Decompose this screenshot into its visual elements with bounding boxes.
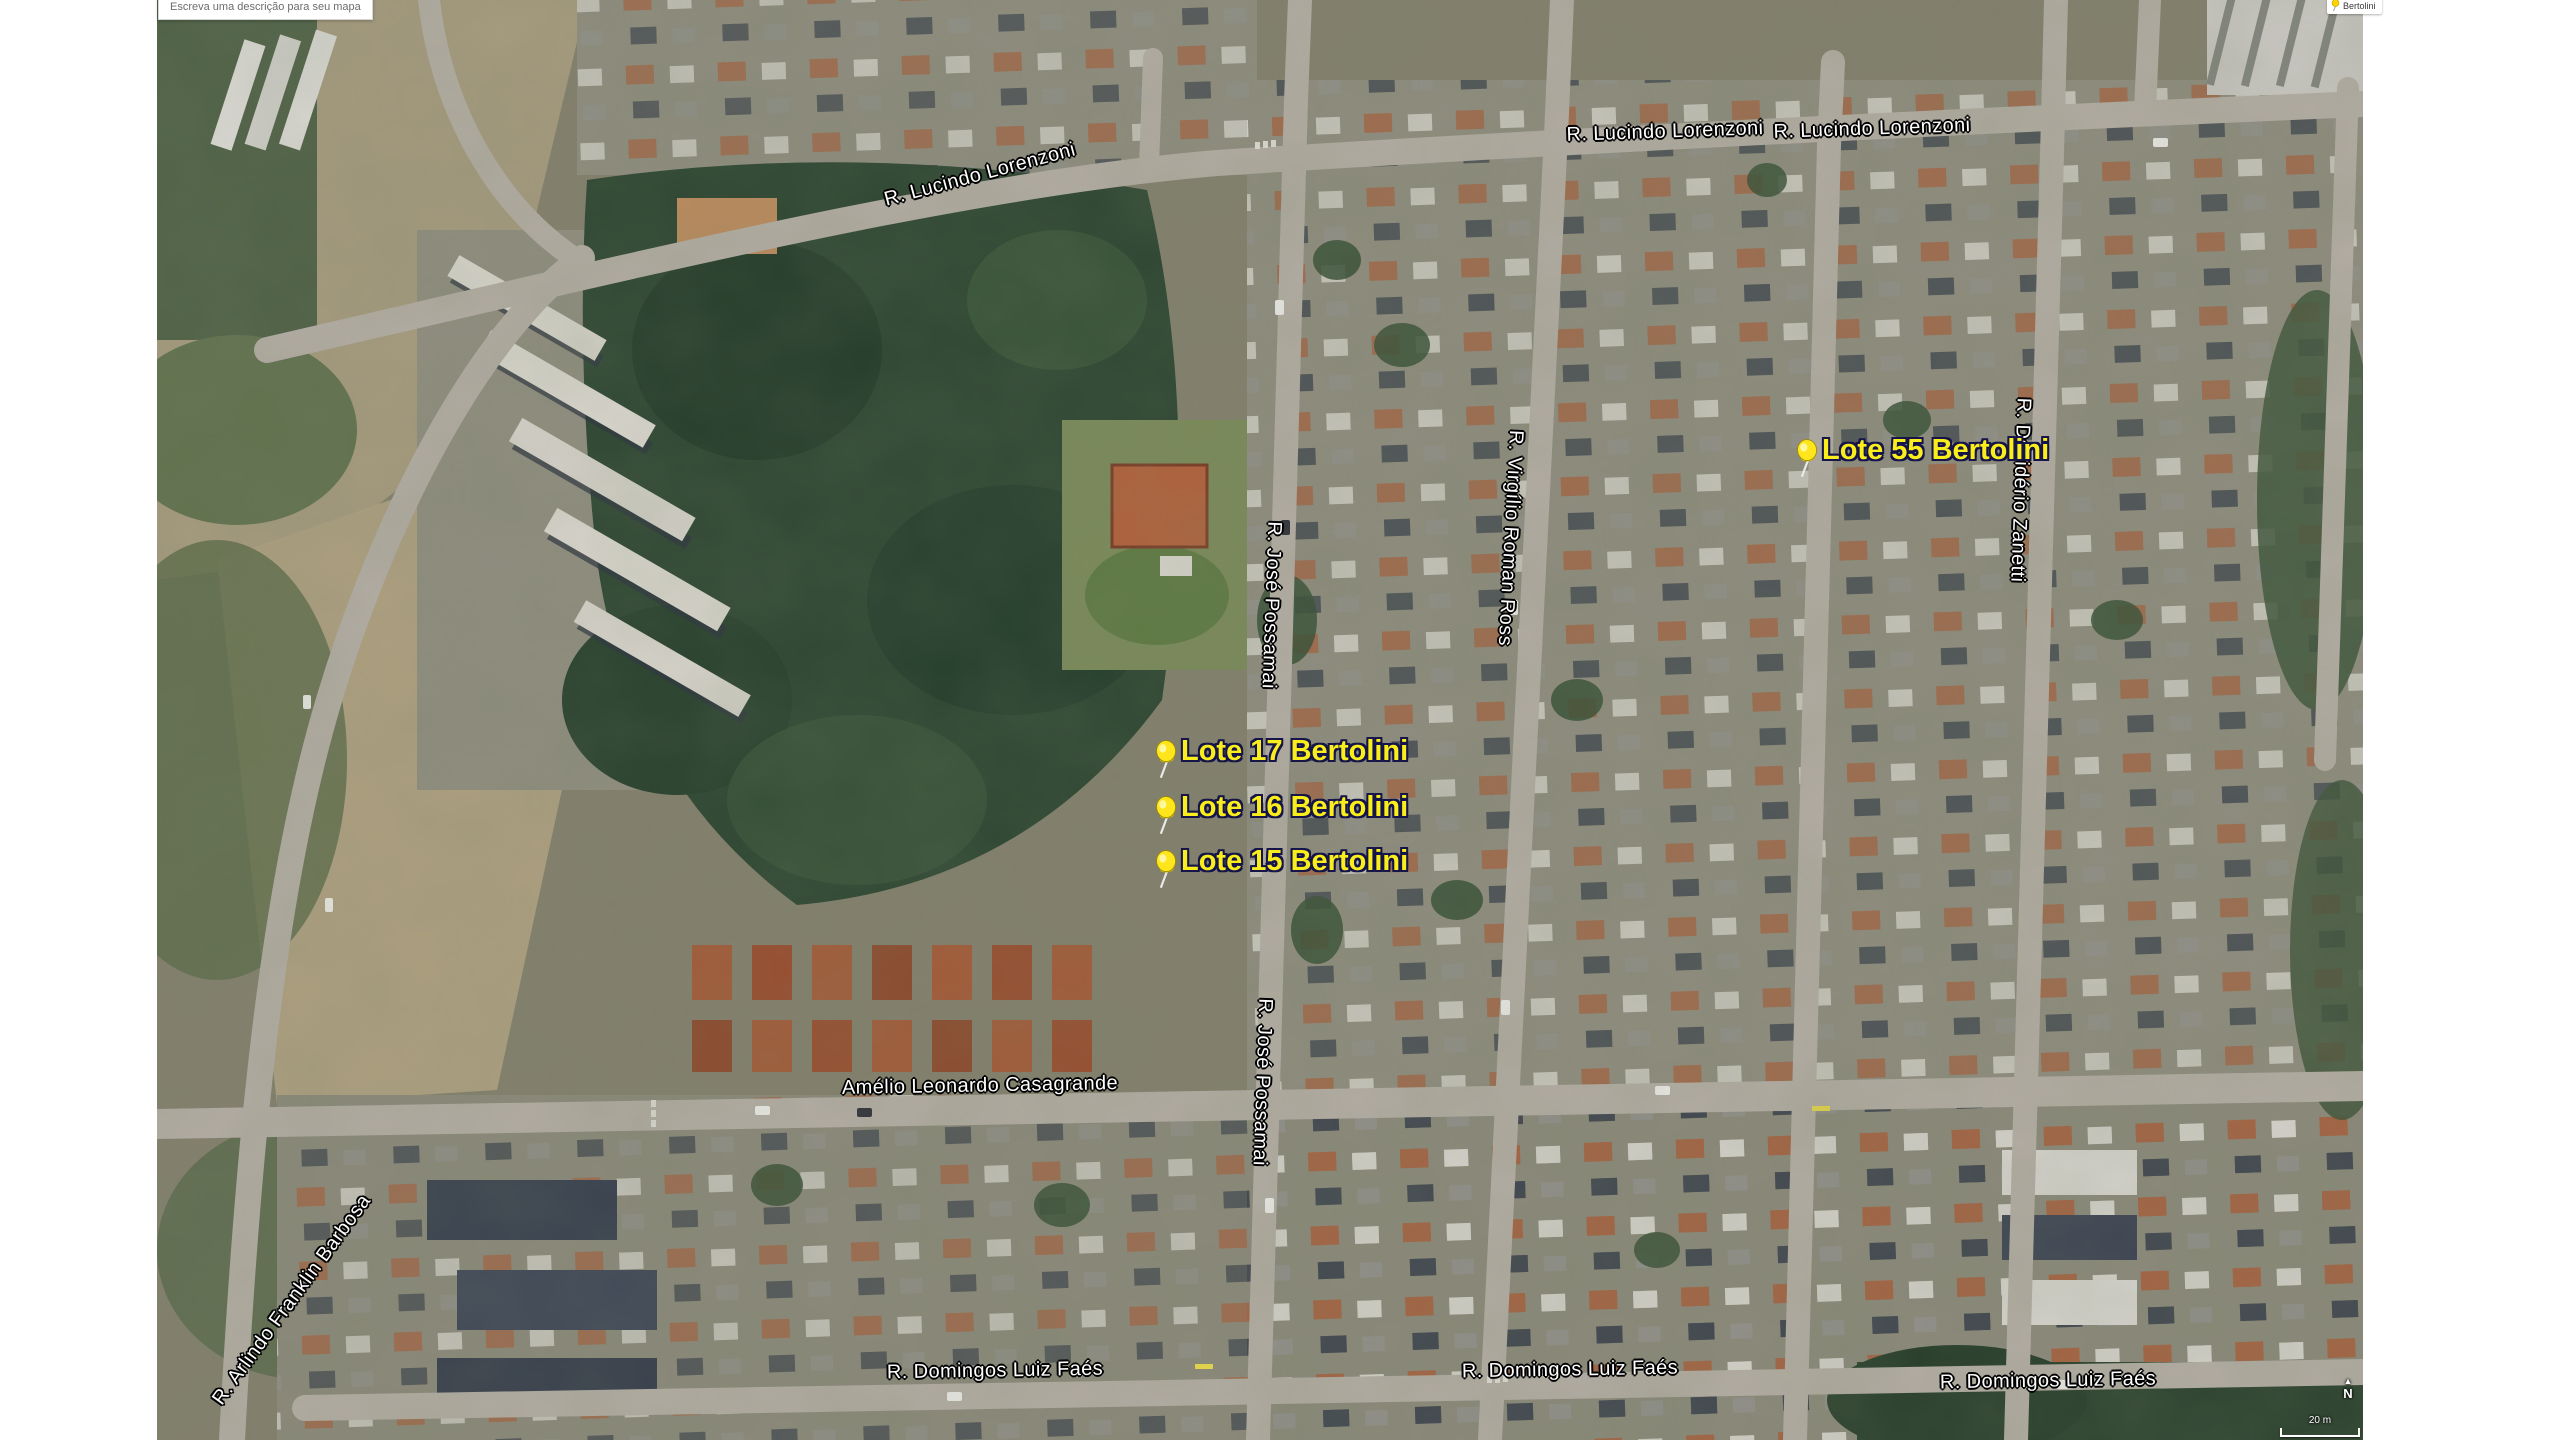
scale-line	[2280, 1428, 2360, 1437]
pushpin-icon	[1153, 795, 1181, 837]
page: R. Lucindo Lorenzoni R. Lucindo Lorenzon…	[0, 0, 2560, 1440]
pin-label: Lote 16 Bertolini	[1181, 791, 1408, 824]
street-label-domingos-luiz-faes-mid: R. Domingos Luiz Faés	[1462, 1357, 1679, 1384]
north-arrow-icon: ▲	[2343, 1377, 2352, 1386]
scale-bar: 20 m	[2280, 1416, 2360, 1437]
scale-label: 20 m	[2309, 1415, 2331, 1426]
pin-label: Lote 55 Bertolini	[1822, 434, 2049, 467]
legend-label: Bertolini	[2343, 1, 2376, 11]
pin-label: Lote 17 Bertolini	[1181, 735, 1408, 768]
map-pin-lote-16[interactable]: Lote 16 Bertolini	[1155, 788, 1408, 836]
pushpin-icon	[1794, 438, 1822, 480]
map-description-tooltip[interactable]: Escreva uma descrição para seu mapa	[158, 0, 373, 20]
north-label: N	[2343, 1387, 2352, 1400]
map-pin-lote-15[interactable]: Lote 15 Bertolini	[1155, 842, 1408, 890]
map-pin-lote-55[interactable]: Lote 55 Bertolini	[1796, 431, 2049, 479]
pin-label: Lote 15 Bertolini	[1181, 845, 1408, 878]
pushpin-icon	[1153, 739, 1181, 781]
street-label-domingos-luiz-faes-east: R. Domingos Luiz Faés	[1940, 1368, 2157, 1395]
satellite-map[interactable]	[157, 0, 2363, 1440]
street-label-amelio-leonardo-casagrande: Amélio Leonardo Casagrande	[842, 1072, 1119, 1100]
pushpin-icon	[2331, 0, 2340, 12]
north-indicator: ▲ N	[2343, 1377, 2352, 1400]
pushpin-icon	[1153, 849, 1181, 891]
street-label-domingos-luiz-faes-west: R. Domingos Luiz Faés	[887, 1358, 1104, 1385]
legend-chip-bertolini[interactable]: Bertolini	[2327, 0, 2382, 14]
satellite-imagery	[157, 0, 2363, 1440]
map-pin-lote-17[interactable]: Lote 17 Bertolini	[1155, 732, 1408, 780]
